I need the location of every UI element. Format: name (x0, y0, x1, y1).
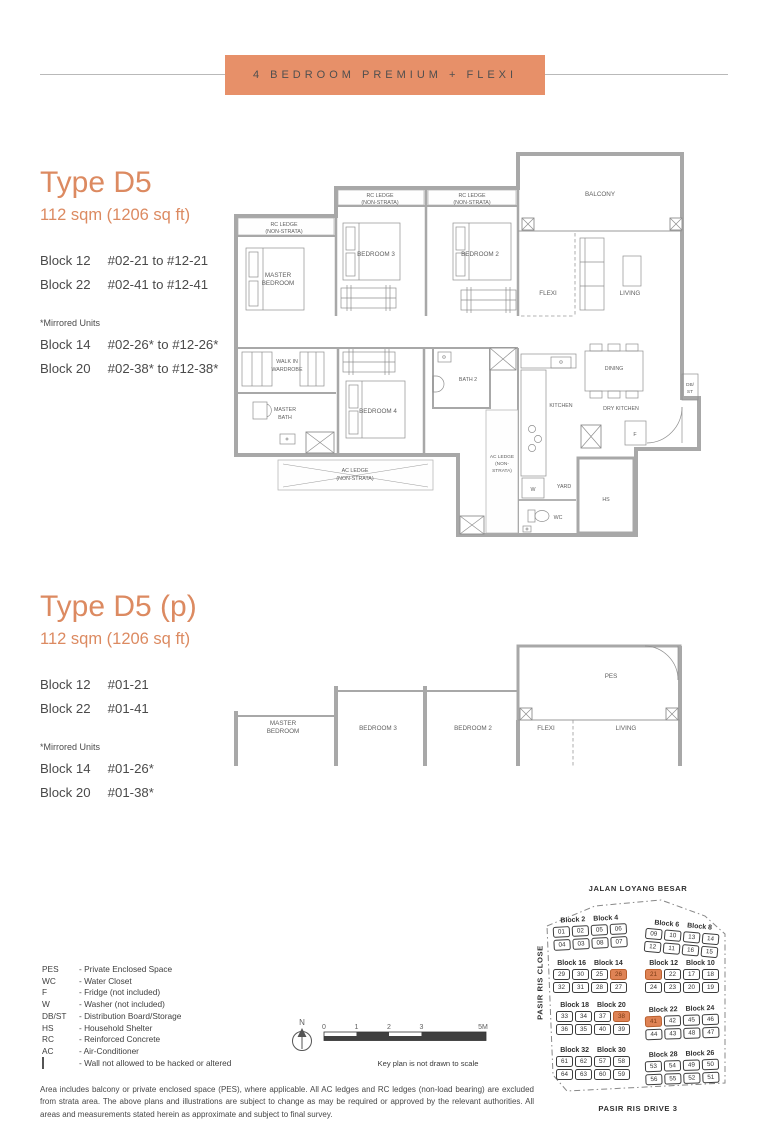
floorplan-d5p: PES MASTER BEDROOM BEDROOM 3 BEDROOM 2 F… (228, 634, 723, 766)
room-label: LIVING (616, 725, 637, 732)
room-label: DINING (605, 366, 624, 372)
unit-box: 18 (702, 969, 719, 980)
unit-box: 24 (645, 982, 662, 993)
block-label: Block 4 (593, 915, 618, 923)
block-units: Block 20 #01-38* (40, 785, 240, 800)
block-label: Block 24 (685, 1005, 714, 1013)
room-label: AC LEDGE (490, 454, 514, 460)
room-label: W (531, 487, 536, 493)
room-label: F (633, 432, 637, 438)
unit-box: 59 (613, 1069, 630, 1080)
type-area: 112 sqm (1206 sq ft) (40, 630, 240, 649)
unit-box: 39 (613, 1024, 630, 1035)
unit-box: 14 (702, 933, 720, 945)
unit-box: 03 (572, 938, 590, 950)
unit-box: 57 (594, 1056, 611, 1067)
block-label: Block 28 (649, 1051, 678, 1059)
block-label: Block 30 (597, 1047, 626, 1054)
room-label: STRATA) (492, 468, 512, 474)
block-units: Block 14 #02-26* to #12-26* (40, 337, 240, 352)
unit-box: 35 (575, 1024, 592, 1035)
block-label: Block 32 (560, 1047, 589, 1054)
type-area: 112 sqm (1206 sq ft) (40, 206, 240, 225)
room-label: LIVING (620, 290, 641, 297)
unit-box: 44 (645, 1029, 662, 1041)
room-label: FLEXI (537, 725, 555, 732)
room-label: (NON-STRATA) (361, 200, 398, 206)
room-label: WALK IN (276, 359, 298, 365)
unit-box: 49 (683, 1059, 700, 1071)
block-label: Block 10 (686, 960, 715, 967)
unit-box: 46 (702, 1014, 719, 1026)
unit-box: 32 (553, 982, 570, 993)
unit-box: 02 (572, 925, 590, 937)
shaft-icon (306, 432, 334, 453)
keyplan-cluster: Block 28Block 265354495056555251 (638, 1050, 725, 1086)
unit-box: 10 (664, 929, 682, 941)
keyplan-clusters: Block 2Block 40102050604030807Block 6Blo… (533, 878, 768, 1133)
unit-box: 21 (645, 969, 662, 980)
unit-box: 54 (664, 1060, 681, 1072)
unit-box: 40 (594, 1024, 611, 1035)
shaft-icon (460, 516, 484, 534)
kitchen-counter (521, 370, 546, 476)
keyplan-cluster: Block 32Block 306162575864636059 (550, 1047, 636, 1080)
shaft-icon (520, 708, 532, 720)
legend-row: HS- Household Shelter (42, 1023, 272, 1035)
unit-box: 53 (645, 1061, 662, 1073)
unit-box: 55 (664, 1073, 681, 1085)
unit-box: 29 (553, 969, 570, 980)
room-label: AC LEDGE (342, 468, 369, 474)
bench (343, 349, 395, 375)
keyplan-cluster: Block 12Block 102122171824232019 (639, 960, 725, 993)
basin-icon (253, 402, 271, 419)
unit-box: 36 (556, 1024, 573, 1035)
block-label: Block 22 (649, 1006, 678, 1014)
block-label: Block 26 (685, 1050, 714, 1058)
keyplan-cluster: Block 16Block 142930252632312827 (547, 960, 633, 993)
room-label: BEDROOM 4 (359, 408, 397, 415)
unit-box: 34 (575, 1011, 592, 1022)
room-label: MASTER (270, 720, 297, 727)
room-label: MASTER (265, 272, 292, 279)
legend-row: DB/ST- Distribution Board/Storage (42, 1011, 272, 1023)
unit-box: 07 (610, 936, 628, 948)
shaft-icon (670, 218, 682, 230)
disclaimer: Area includes balcony or private enclose… (40, 1084, 534, 1121)
unit-box: 26 (610, 969, 627, 980)
unit-box: 41 (645, 1016, 662, 1028)
unit-box: 51 (702, 1072, 719, 1084)
room-label: BEDROOM 2 (461, 251, 499, 258)
legend-row-wall: - Wall not allowed to be hacked or alter… (42, 1058, 272, 1070)
unit-box: 20 (683, 982, 700, 993)
block-label: Block 12 (649, 960, 678, 967)
room-label: BEDROOM 2 (454, 725, 492, 732)
block-units: Block 12 #02-21 to #12-21 (40, 253, 240, 268)
block-units: Block 22 #01-41 (40, 701, 240, 716)
legend: PES- Private Enclosed Space WC- Water Cl… (42, 964, 272, 1069)
room-label: (NON-STRATA) (265, 229, 302, 235)
block-label: Block 14 (594, 960, 623, 967)
unit-box: 01 (553, 926, 571, 938)
shaft-icon (522, 218, 534, 230)
type-heading: Type D5 (40, 166, 240, 200)
block-label: Block 8 (687, 922, 712, 931)
block-units: Block 22 #02-41 to #12-41 (40, 277, 240, 292)
keyplan-cluster: Block 22Block 244142454644434847 (638, 1005, 725, 1041)
legend-row: W- Washer (not included) (42, 999, 272, 1011)
room-label: RC LEDGE (270, 222, 298, 228)
unit-box: 61 (556, 1056, 573, 1067)
unit-box: 09 (645, 928, 663, 940)
unit-box: 63 (575, 1069, 592, 1080)
block-label: Block 16 (557, 960, 586, 967)
shaft-icon (666, 708, 678, 720)
wardrobe (242, 352, 272, 386)
unit-box: 42 (664, 1015, 681, 1027)
room-label: BALCONY (585, 191, 616, 198)
unit-box: 08 (591, 937, 609, 949)
type-heading: Type D5 (p) (40, 590, 240, 624)
block-units: Block 20 #02-38* to #12-38* (40, 361, 240, 376)
legend-row: WC- Water Closet (42, 976, 272, 988)
unit-box: 06 (610, 923, 628, 935)
room-label: YARD (557, 484, 571, 490)
door-arc (645, 646, 678, 680)
block-label: Block 20 (597, 1002, 626, 1009)
brochure-page: 4 BEDROOM PREMIUM + FLEXI Type D5 112 sq… (0, 0, 768, 1139)
unit-box: 37 (594, 1011, 611, 1022)
room-label: BEDROOM 3 (357, 251, 395, 258)
room-label: FLEXI (539, 290, 557, 297)
room-label: RC LEDGE (366, 193, 394, 199)
basin-icon (438, 352, 451, 362)
unit-box: 47 (702, 1027, 719, 1039)
unit-box: 15 (700, 946, 718, 958)
legend-row: F- Fridge (not included) (42, 987, 272, 999)
unit-box: 58 (613, 1056, 630, 1067)
scale-tick: 1 (355, 1024, 359, 1031)
unit-box: 56 (645, 1074, 662, 1086)
room-label: DRY KITCHEN (603, 406, 639, 412)
room-label: HS (602, 497, 610, 503)
unit-box: 33 (556, 1011, 573, 1022)
unit-box: 62 (575, 1056, 592, 1067)
bench (461, 287, 516, 313)
room-label: RC LEDGE (458, 193, 486, 199)
room-label: KITCHEN (549, 403, 572, 409)
scale-tick: 5M (478, 1024, 488, 1031)
mirrored-note: *Mirrored Units (40, 742, 240, 752)
unit-box: 05 (591, 924, 609, 936)
unit-box: 12 (644, 941, 662, 953)
scale-tick: 0 (322, 1024, 326, 1031)
north-label: N (299, 1018, 305, 1027)
room-label: ST (687, 389, 693, 395)
banner: 4 BEDROOM PREMIUM + FLEXI (225, 55, 545, 95)
room-label: (NON-STRATA) (453, 200, 490, 206)
floor-trap (280, 434, 295, 444)
room-label: BEDROOM (262, 280, 295, 287)
basin-icon (433, 376, 444, 392)
unit-box: 23 (664, 982, 681, 993)
legend-row: AC- Air-Conditioner (42, 1046, 272, 1058)
unit-box: 04 (553, 939, 571, 951)
unit-box: 30 (572, 969, 589, 980)
unit-box: 52 (683, 1072, 700, 1084)
unit-box: 22 (664, 969, 681, 980)
keyplan: JALAN LOYANG BESAR PASIR RIS CLOSE PASIR… (533, 878, 768, 1133)
unit-box: 50 (702, 1059, 719, 1071)
unit-box: 60 (594, 1069, 611, 1080)
block-units: Block 14 #01-26* (40, 761, 240, 776)
kitchen-sink (551, 357, 571, 368)
type-d5p-info: Type D5 (p) 112 sqm (1206 sq ft) Block 1… (40, 590, 240, 809)
toilet-icon (528, 510, 549, 522)
room-label: DB/ (686, 382, 695, 388)
room-label: BEDROOM (267, 728, 300, 735)
unit-box: 28 (591, 982, 608, 993)
floor-trap (523, 526, 531, 532)
banner-title: 4 BEDROOM PREMIUM + FLEXI (253, 69, 517, 81)
legend-row: PES- Private Enclosed Space (42, 964, 272, 976)
unit-box: 17 (683, 969, 700, 980)
legend-row: RC- Reinforced Concrete (42, 1034, 272, 1046)
kitchen-counter (521, 354, 576, 368)
floorplan-d5: RC LEDGE (NON-STRATA) RC LEDGE (NON-STRA… (228, 148, 723, 548)
scale-tick: 2 (387, 1024, 391, 1031)
unit-box: 31 (572, 982, 589, 993)
unit-box: 13 (683, 931, 701, 943)
stove-icon (528, 425, 541, 451)
room-label: (NON- (495, 461, 509, 467)
unit-box: 48 (683, 1027, 700, 1039)
unit-box: 16 (682, 944, 700, 956)
compass-icon (293, 1028, 312, 1051)
block-label: Block 2 (560, 916, 585, 924)
unit-box: 43 (664, 1028, 681, 1040)
mirrored-note: *Mirrored Units (40, 318, 240, 328)
type-d5-info: Type D5 112 sqm (1206 sq ft) Block 12 #0… (40, 166, 240, 385)
shaft-icon (581, 425, 601, 448)
shaft-icon (490, 348, 516, 370)
keyplan-note: Key plan is not drawn to scale (368, 1059, 488, 1068)
room-label: BATH 2 (459, 377, 477, 383)
room-label: PES (605, 673, 618, 680)
coffee-table (623, 256, 641, 286)
sofa (580, 238, 604, 310)
room-label: BEDROOM 3 (359, 725, 397, 732)
bed (246, 248, 304, 310)
unit-box: 25 (591, 969, 608, 980)
unit-box: 45 (683, 1014, 700, 1026)
block-units: Block 12 #01-21 (40, 677, 240, 692)
keyplan-cluster: Block 6Block 80910131412111615 (638, 918, 727, 958)
scale-tick: 3 (420, 1024, 424, 1031)
wall-swatch (42, 1057, 44, 1069)
unit-box: 38 (613, 1011, 630, 1022)
keyplan-cluster: Block 18Block 203334373836354039 (550, 1002, 636, 1035)
unit-box: 11 (663, 942, 681, 954)
room-label: WARDROBE (272, 367, 303, 373)
room-label: MASTER (274, 407, 296, 413)
room-label: WC (554, 515, 563, 521)
room-label: (NON-STRATA) (336, 476, 373, 482)
unit-box: 19 (702, 982, 719, 993)
unit-box: 64 (556, 1069, 573, 1080)
wardrobe (300, 352, 324, 386)
block-label: Block 6 (654, 920, 679, 929)
keyplan-cluster: Block 2Block 40102050604030807 (546, 914, 634, 951)
unit-box: 27 (610, 982, 627, 993)
room-label: BATH (278, 415, 292, 421)
bench (341, 285, 396, 311)
block-label: Block 18 (560, 1002, 589, 1009)
scale-bar: N 0 1 2 3 5M (288, 1014, 493, 1058)
